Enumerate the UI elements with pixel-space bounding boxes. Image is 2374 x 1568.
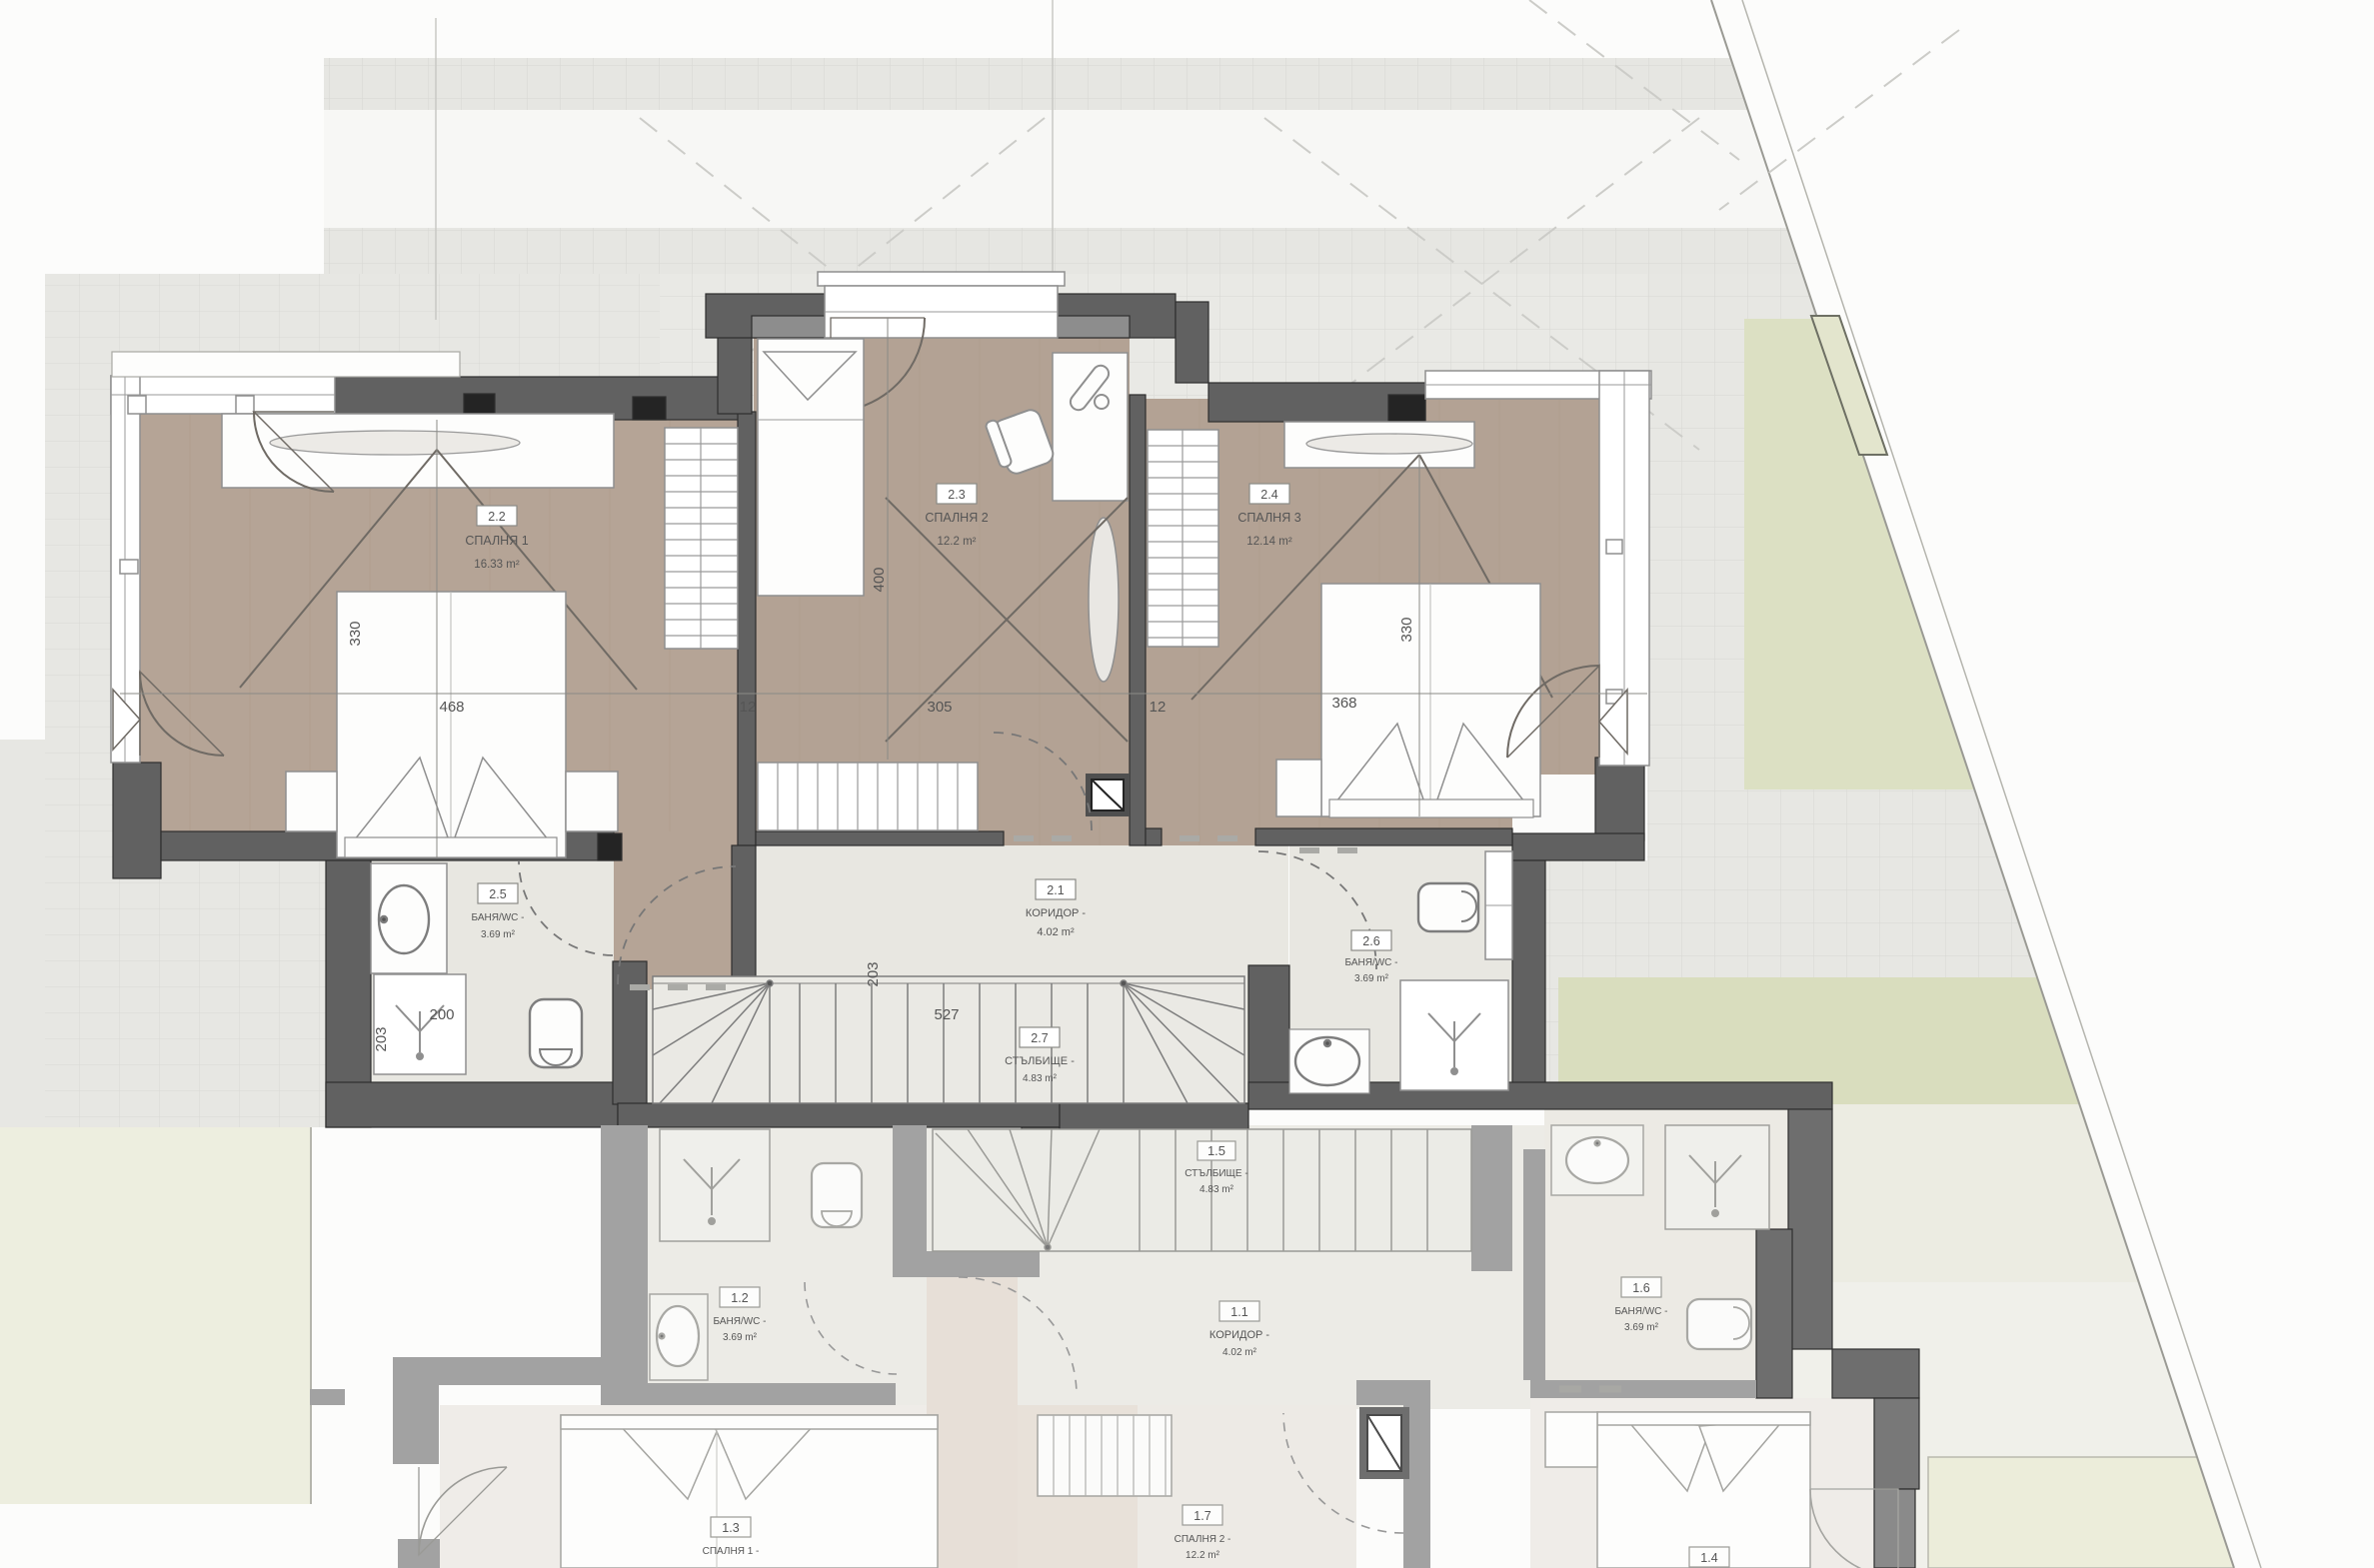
svg-text:4.83 m²: 4.83 m² [1023, 1073, 1058, 1084]
svg-text:СПАЛНЯ 1: СПАЛНЯ 1 [465, 534, 528, 548]
svg-text:2.2: 2.2 [488, 510, 505, 524]
svg-text:2.5: 2.5 [489, 887, 506, 901]
svg-text:1.3: 1.3 [722, 1521, 739, 1535]
svg-text:БАНЯ/WC -: БАНЯ/WC - [471, 912, 524, 923]
svg-text:3.69 m²: 3.69 m² [481, 929, 516, 940]
svg-text:2.6: 2.6 [1362, 934, 1379, 948]
svg-text:3.69 m²: 3.69 m² [1624, 1322, 1659, 1333]
svg-text:КОРИДОР -: КОРИДОР - [1209, 1329, 1269, 1341]
svg-text:2.1: 2.1 [1047, 883, 1064, 897]
svg-text:2.4: 2.4 [1260, 488, 1277, 502]
svg-text:368: 368 [1331, 695, 1356, 712]
svg-text:БАНЯ/WC -: БАНЯ/WC - [1344, 957, 1397, 968]
svg-text:1.2: 1.2 [731, 1291, 748, 1305]
svg-text:4.02 m²: 4.02 m² [1222, 1347, 1257, 1358]
svg-text:330: 330 [347, 621, 364, 646]
svg-text:203: 203 [373, 1026, 390, 1051]
svg-text:2.3: 2.3 [948, 488, 965, 502]
svg-text:200: 200 [429, 1006, 454, 1023]
svg-text:БАНЯ/WC -: БАНЯ/WC - [713, 1316, 766, 1327]
svg-text:1.1: 1.1 [1230, 1305, 1247, 1319]
svg-text:СПАЛНЯ 1 -: СПАЛНЯ 1 - [703, 1546, 760, 1557]
svg-text:1.7: 1.7 [1193, 1509, 1210, 1523]
svg-text:12.2 m²: 12.2 m² [1186, 1550, 1220, 1561]
svg-text:16.33 m²: 16.33 m² [474, 559, 520, 571]
svg-text:1.6: 1.6 [1632, 1281, 1649, 1295]
svg-text:12: 12 [740, 699, 757, 716]
svg-text:12.2 m²: 12.2 m² [938, 536, 977, 548]
svg-text:12: 12 [1150, 699, 1167, 716]
svg-text:КОРИДОР -: КОРИДОР - [1026, 907, 1086, 919]
svg-text:400: 400 [871, 567, 888, 592]
svg-text:3.69 m²: 3.69 m² [1354, 973, 1389, 984]
svg-text:4.83 m²: 4.83 m² [1199, 1184, 1234, 1195]
svg-text:330: 330 [1398, 617, 1415, 642]
svg-text:СТЪЛБИЩЕ -: СТЪЛБИЩЕ - [1185, 1168, 1247, 1179]
svg-text:3.69 m²: 3.69 m² [723, 1332, 758, 1343]
svg-text:468: 468 [439, 699, 464, 716]
svg-text:СПАЛНЯ 2: СПАЛНЯ 2 [925, 511, 988, 525]
svg-text:305: 305 [927, 699, 952, 716]
svg-text:1.5: 1.5 [1207, 1143, 1225, 1158]
svg-text:527: 527 [934, 1006, 959, 1023]
svg-text:БАНЯ/WC -: БАНЯ/WC - [1614, 1306, 1667, 1317]
svg-text:СТЪЛБИЩЕ -: СТЪЛБИЩЕ - [1005, 1055, 1075, 1067]
svg-text:2.7: 2.7 [1031, 1031, 1048, 1045]
svg-text:203: 203 [865, 961, 882, 986]
svg-text:СПАЛНЯ 3: СПАЛНЯ 3 [1237, 511, 1300, 525]
svg-text:1.4: 1.4 [1700, 1551, 1717, 1565]
svg-text:12.14 m²: 12.14 m² [1246, 536, 1292, 548]
svg-text:4.02 m²: 4.02 m² [1037, 926, 1075, 938]
svg-text:СПАЛНЯ 2 -: СПАЛНЯ 2 - [1175, 1534, 1231, 1545]
